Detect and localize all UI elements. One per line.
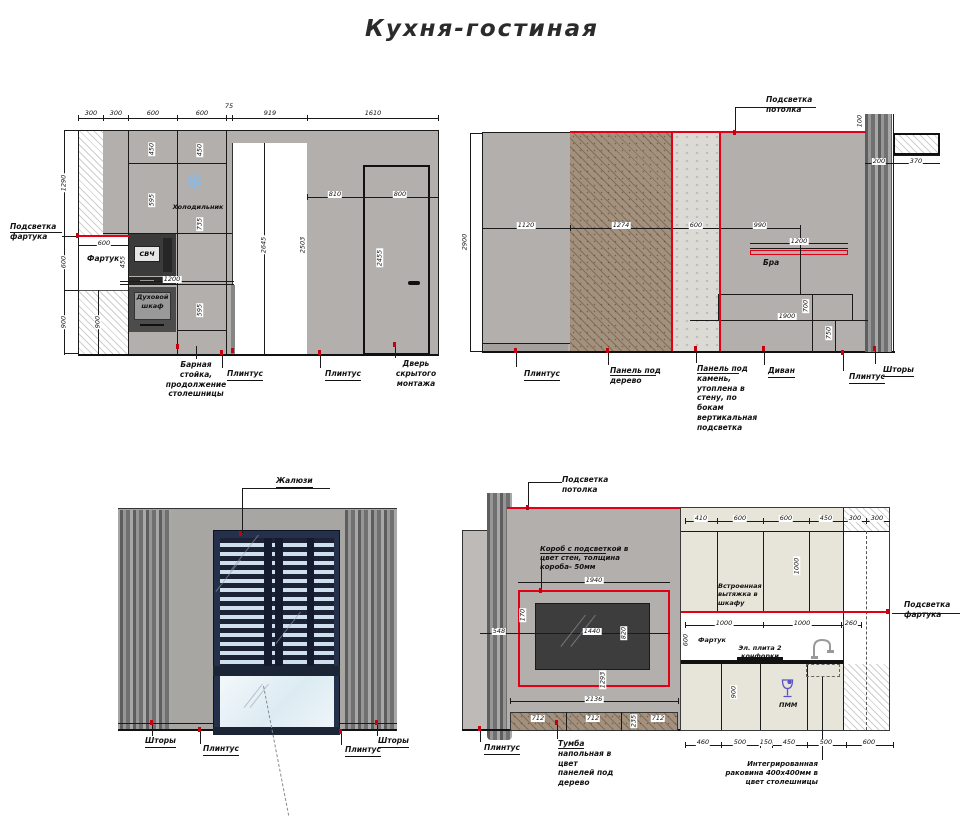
sink-callout: Интегрированная раковина 400х400мм в цве… (700, 760, 818, 787)
dim-line (480, 633, 670, 634)
dim-label: 600 (862, 739, 876, 746)
backsplash-light-line (681, 611, 889, 613)
leader-marker (555, 720, 558, 725)
stone-panel-callout: Панель под камень, утоплена в стену, по … (697, 364, 757, 432)
dim-label: 600 (733, 515, 747, 522)
dim-label: 900 (60, 315, 67, 329)
plinth-callout: Плинтус (325, 369, 361, 381)
dim-label: 990 (753, 222, 767, 229)
leader-marker (478, 726, 481, 731)
tv-panel (535, 603, 650, 670)
plinth-callout: Плинтус (849, 372, 885, 384)
leader-line (528, 482, 562, 483)
fridge-label: Холодильник (173, 203, 224, 211)
dim-label: 712 (651, 715, 665, 722)
cabinet-divider (721, 664, 722, 730)
dim-label: 750 (825, 326, 832, 340)
dim-label: 100 (856, 114, 863, 128)
tv-stand-callout: Тумба напольная в цвет панелей под дерев… (558, 739, 613, 788)
dim-label: 235 (630, 714, 637, 728)
dim-label: 712 (586, 715, 600, 722)
bar-counter-callout: Барная стойка, продолжение столешницы (166, 360, 226, 399)
ceiling-light-line (570, 131, 866, 133)
leader-marker (886, 609, 889, 614)
dim-label: 800 (393, 191, 407, 198)
leader-marker (150, 720, 153, 725)
dim-label: 600 (779, 515, 793, 522)
stove-callout: Эл. плита 2 конфорки (738, 644, 781, 661)
leader-marker (239, 531, 242, 536)
leader-marker (198, 727, 201, 732)
cabinet-divider (809, 531, 810, 612)
dim-tick (717, 518, 718, 524)
hatch-area (843, 664, 889, 730)
dim-label: 2136 (585, 696, 604, 703)
curtains-callout: Шторы (883, 365, 914, 377)
dim-label: 900 (730, 685, 737, 699)
dim-tick (861, 622, 862, 628)
leader-line (822, 677, 823, 760)
dim-tick (763, 518, 764, 524)
fridge-snowflake-icon: ❄ (185, 170, 203, 195)
dim-tick (678, 698, 679, 704)
dim-label: 1200 (790, 238, 809, 245)
dim-tick (866, 518, 867, 524)
dim-label: 600 (146, 110, 160, 117)
vertical-light-line (671, 133, 673, 351)
dim-label: 600 (195, 110, 209, 117)
blinds-callout: Жалюзи (276, 476, 313, 488)
dim-tick (807, 742, 808, 748)
plinth-callout: Плинтус (484, 743, 520, 755)
dim-label: 500 (819, 739, 833, 746)
dim-label: 820 (620, 626, 627, 640)
dim-label: 1000 (715, 620, 734, 627)
dim-label: 1293 (599, 671, 606, 690)
wall-return (462, 530, 490, 730)
hood-callout: Встроенная вытяжка в шкафу (718, 582, 762, 607)
cabinet-divider (621, 712, 622, 731)
leader-marker (318, 350, 321, 355)
dim-line (685, 625, 861, 626)
faucet-icon (808, 634, 836, 664)
leader-marker (393, 342, 396, 347)
dim-label: 1120 (517, 222, 536, 229)
dishwasher-icon (780, 678, 795, 703)
dim-label: 460 (696, 739, 710, 746)
dim-tick (841, 622, 842, 628)
cabinet-divider (566, 712, 567, 731)
dim-tick (685, 742, 686, 748)
dim-label: 450 (819, 515, 833, 522)
wood-panel-callout: Панель под дерево (610, 366, 661, 386)
dim-label: 1200 (163, 276, 182, 283)
dim-label: 450 (196, 143, 203, 157)
cabinet-rail-line (681, 531, 889, 532)
light-box-callout: Короб с подсветкой в цвет стен, толщина … (540, 545, 628, 572)
dim-label: 200 (872, 158, 886, 165)
dim-label: 700 (802, 299, 809, 313)
dim-label: 712 (531, 715, 545, 722)
leader-marker (873, 346, 876, 351)
dim-label: 595 (196, 303, 203, 317)
dim-label: 2900 (461, 233, 468, 252)
dim-label: 735 (196, 217, 203, 231)
dim-tick (685, 518, 686, 524)
leader-marker (526, 505, 529, 510)
dim-label: 595 (148, 193, 155, 207)
elevation-tv-kitchen-wall: Подсветка потолка Короб с подсветкой в ц… (0, 0, 964, 819)
dim-label: 260 (844, 620, 858, 627)
dim-tick (510, 698, 511, 704)
dim-label: 1290 (60, 174, 67, 193)
sofa-callout: Диван (768, 366, 795, 378)
dishwasher-callout: ПММ (779, 701, 797, 709)
dim-label: 600 (689, 222, 703, 229)
backsplash-light-callout: Подсветка фартука (904, 600, 950, 620)
dim-label: 900 (94, 315, 101, 329)
dim-label: 500 (733, 739, 747, 746)
curtains-callout: Шторы (378, 736, 409, 748)
dim-label: 600 (682, 633, 689, 647)
leader-marker (694, 346, 697, 351)
plinth-callout: Плинтус (203, 744, 239, 756)
vertical-light-line (719, 133, 721, 351)
dim-label: 370 (909, 158, 923, 165)
dim-tick (721, 742, 722, 748)
dim-label: 300 (848, 515, 862, 522)
dim-label: 410 (694, 515, 708, 522)
leader-marker (375, 720, 378, 725)
dim-label: 1440 (583, 628, 602, 635)
dim-label: 548 (492, 628, 506, 635)
dim-label: 1000 (793, 557, 800, 576)
oven-label: Духовой шкаф (134, 292, 171, 320)
dim-label: 2645 (260, 236, 267, 255)
dim-tick (843, 518, 844, 524)
backsplash-light-line (78, 235, 129, 237)
ceiling-light-callout: Подсветка потолка (562, 475, 608, 495)
drawing-canvas: Кухня-гостиная СВЧ Духовой шкаф ❄ Холоди… (0, 0, 964, 819)
leader-marker (733, 130, 736, 135)
dim-label: 75 (224, 103, 234, 110)
dim-label: 1900 (778, 313, 797, 320)
dim-label: 170 (519, 608, 526, 622)
curtains-callout: Шторы (145, 736, 176, 748)
dim-label: 919 (263, 110, 277, 117)
hidden-door-callout: Дверь скрытого монтажа (396, 359, 436, 388)
dim-label: 810 (328, 191, 342, 198)
leader-line (557, 724, 558, 739)
dim-label: 300 (870, 515, 884, 522)
leader-marker (841, 350, 844, 355)
leader-marker (231, 348, 234, 353)
backsplash-callout: Фартук (698, 636, 726, 644)
dim-tick (893, 742, 894, 748)
dim-label: 2455 (376, 249, 383, 268)
leader-marker (339, 729, 342, 734)
dim-label: 1610 (364, 110, 383, 117)
dim-label: 455 (119, 255, 126, 269)
plinth-callout: Плинтус (345, 745, 381, 757)
leader-marker (76, 233, 79, 238)
leader-marker (539, 588, 542, 593)
dim-label: 1000 (793, 620, 812, 627)
dim-label: 150 (759, 739, 773, 746)
leader-marker (514, 348, 517, 353)
ceiling-light-callout: Подсветка потолка (766, 95, 812, 115)
backsplash-light-callout: Подсветка фартука (10, 222, 56, 242)
dim-tick (846, 742, 847, 748)
dim-label: 2503 (299, 236, 306, 255)
cabinet-divider (760, 664, 761, 730)
leader-marker (762, 346, 765, 351)
plinth-callout: Плинтус (524, 369, 560, 381)
leader-marker (606, 348, 609, 353)
upper-cabinets (681, 508, 843, 612)
ceiling-light-line (507, 507, 680, 509)
plinth-callout: Плинтус (227, 369, 263, 381)
cabinet-divider (763, 531, 764, 612)
integrated-sink-outline (806, 664, 840, 677)
dim-tick (763, 622, 764, 628)
leader-marker (220, 350, 223, 355)
sconce-callout: Бра (763, 258, 779, 268)
dim-label: 600 (60, 255, 67, 269)
dim-label: 300 (84, 110, 98, 117)
dim-tick (809, 518, 810, 524)
backsplash-callout: Фартук (87, 254, 119, 264)
dim-tick (685, 622, 686, 628)
dim-label: 300 (109, 110, 123, 117)
dim-label: 450 (148, 142, 155, 156)
dim-label: 1940 (585, 577, 604, 584)
dim-label: 1274 (612, 222, 631, 229)
leader-marker (176, 344, 179, 349)
dim-label: 450 (782, 739, 796, 746)
dim-label: 600 (97, 240, 111, 247)
leader-line (528, 482, 529, 507)
